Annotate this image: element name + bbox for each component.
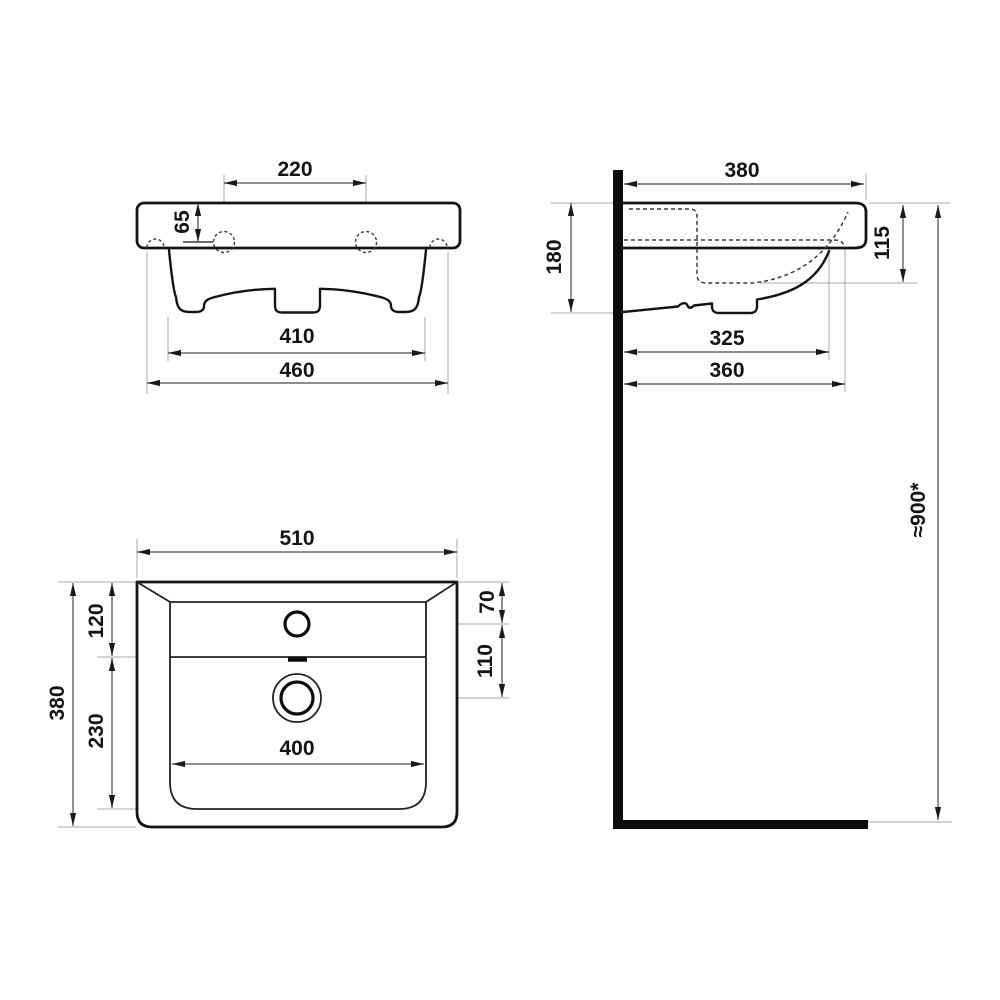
wall-section xyxy=(613,170,623,829)
dim-plan-overall-width: 510 xyxy=(279,527,314,550)
dim-plan-basin-rear-depth: 230 xyxy=(85,713,108,748)
front-pedestal-outline xyxy=(169,250,426,313)
technical-drawing-page: 220 65 410 460 xyxy=(0,0,1000,1000)
dim-plan-deck-depth: 120 xyxy=(85,603,108,638)
dim-front-overall-width: 460 xyxy=(279,359,314,382)
washbasin-drawing: 220 65 410 460 xyxy=(0,0,1000,1000)
front-view: 220 65 410 460 xyxy=(137,158,460,394)
dim-side-body-depth: 360 xyxy=(709,359,744,382)
dim-front-hole-spacing: 220 xyxy=(277,158,312,181)
side-extension-lines xyxy=(551,173,952,822)
dim-side-basin-depth: 325 xyxy=(709,327,744,350)
dim-front-body-width: 410 xyxy=(279,325,314,348)
dim-side-mounting-height: ≈900* xyxy=(907,482,930,538)
dim-side-overall-depth: 380 xyxy=(724,159,759,182)
plan-view: 510 380 120 230 70 110 400 xyxy=(46,527,509,827)
dim-side-rim-to-basin-bottom: 115 xyxy=(871,226,894,260)
dim-plan-overall-depth: 380 xyxy=(46,685,69,720)
plan-outer-rim xyxy=(137,582,457,827)
dim-plan-basin-width: 400 xyxy=(279,737,314,760)
side-view: 380 180 115 325 360 ≈900* xyxy=(543,159,952,829)
dim-plan-faucet-to-drain: 110 xyxy=(474,644,497,678)
dim-front-deck-height: 65 xyxy=(171,210,194,234)
dim-side-height-at-wall: 180 xyxy=(543,239,566,274)
floor-section xyxy=(613,820,868,829)
side-body-profile xyxy=(623,251,829,313)
dim-plan-faucet-from-rear: 70 xyxy=(476,590,499,613)
